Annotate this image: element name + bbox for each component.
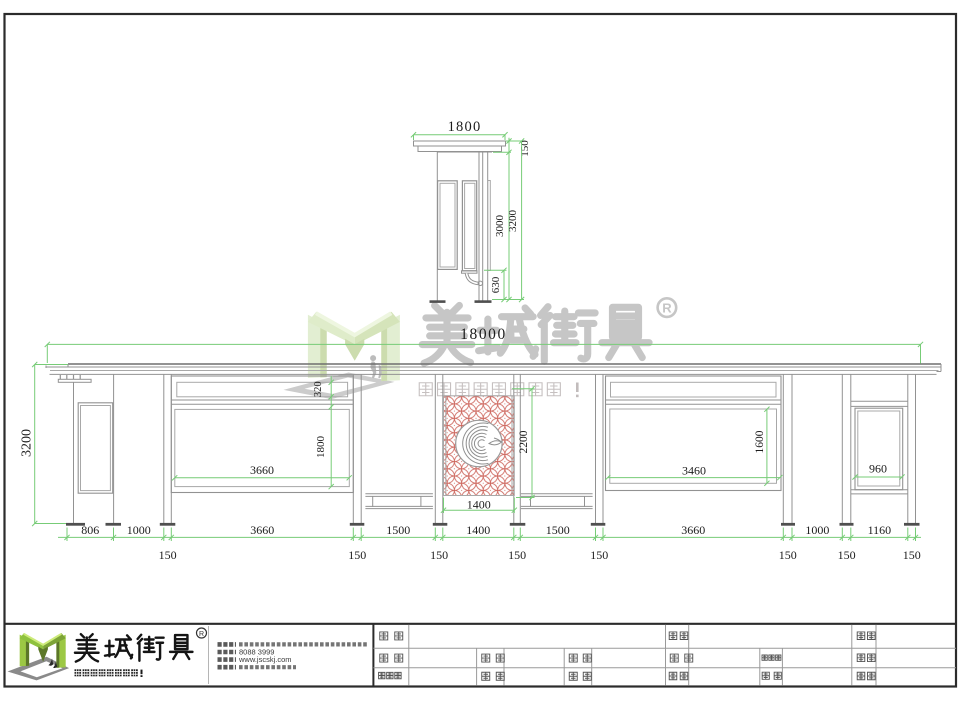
svg-text:2200: 2200 (518, 430, 530, 453)
svg-text:1000: 1000 (127, 523, 151, 537)
svg-text:1160: 1160 (868, 523, 892, 537)
svg-text:R: R (662, 300, 672, 315)
svg-text:3200: 3200 (20, 429, 35, 457)
svg-text:1800: 1800 (448, 119, 482, 135)
svg-text:150: 150 (838, 548, 856, 562)
svg-text:3660: 3660 (681, 523, 705, 537)
svg-text:www.jscskj.com: www.jscskj.com (238, 655, 292, 664)
svg-text:1500: 1500 (546, 523, 570, 537)
svg-text:3460: 3460 (682, 464, 706, 478)
svg-text:150: 150 (430, 548, 448, 562)
svg-text:150: 150 (508, 548, 526, 562)
svg-text:3200: 3200 (507, 210, 519, 233)
svg-text:1400: 1400 (466, 523, 490, 537)
svg-text:150: 150 (590, 548, 608, 562)
svg-text:3660: 3660 (250, 523, 274, 537)
svg-text:1600: 1600 (754, 430, 766, 453)
svg-text:1500: 1500 (386, 523, 410, 537)
svg-text:320: 320 (313, 381, 324, 397)
svg-text:1800: 1800 (315, 436, 327, 459)
svg-text:630: 630 (490, 276, 502, 293)
svg-text:150: 150 (348, 548, 366, 562)
svg-text:3660: 3660 (250, 463, 274, 477)
svg-text:1400: 1400 (467, 498, 491, 512)
svg-text:150: 150 (779, 548, 797, 562)
svg-text:1000: 1000 (805, 523, 829, 537)
svg-text:806: 806 (81, 523, 99, 537)
svg-text:150: 150 (903, 548, 921, 562)
svg-text:3000: 3000 (494, 215, 506, 238)
svg-text:R: R (199, 631, 204, 638)
svg-text:960: 960 (869, 462, 887, 476)
svg-text:18000: 18000 (460, 326, 507, 343)
svg-text:150: 150 (159, 548, 177, 562)
